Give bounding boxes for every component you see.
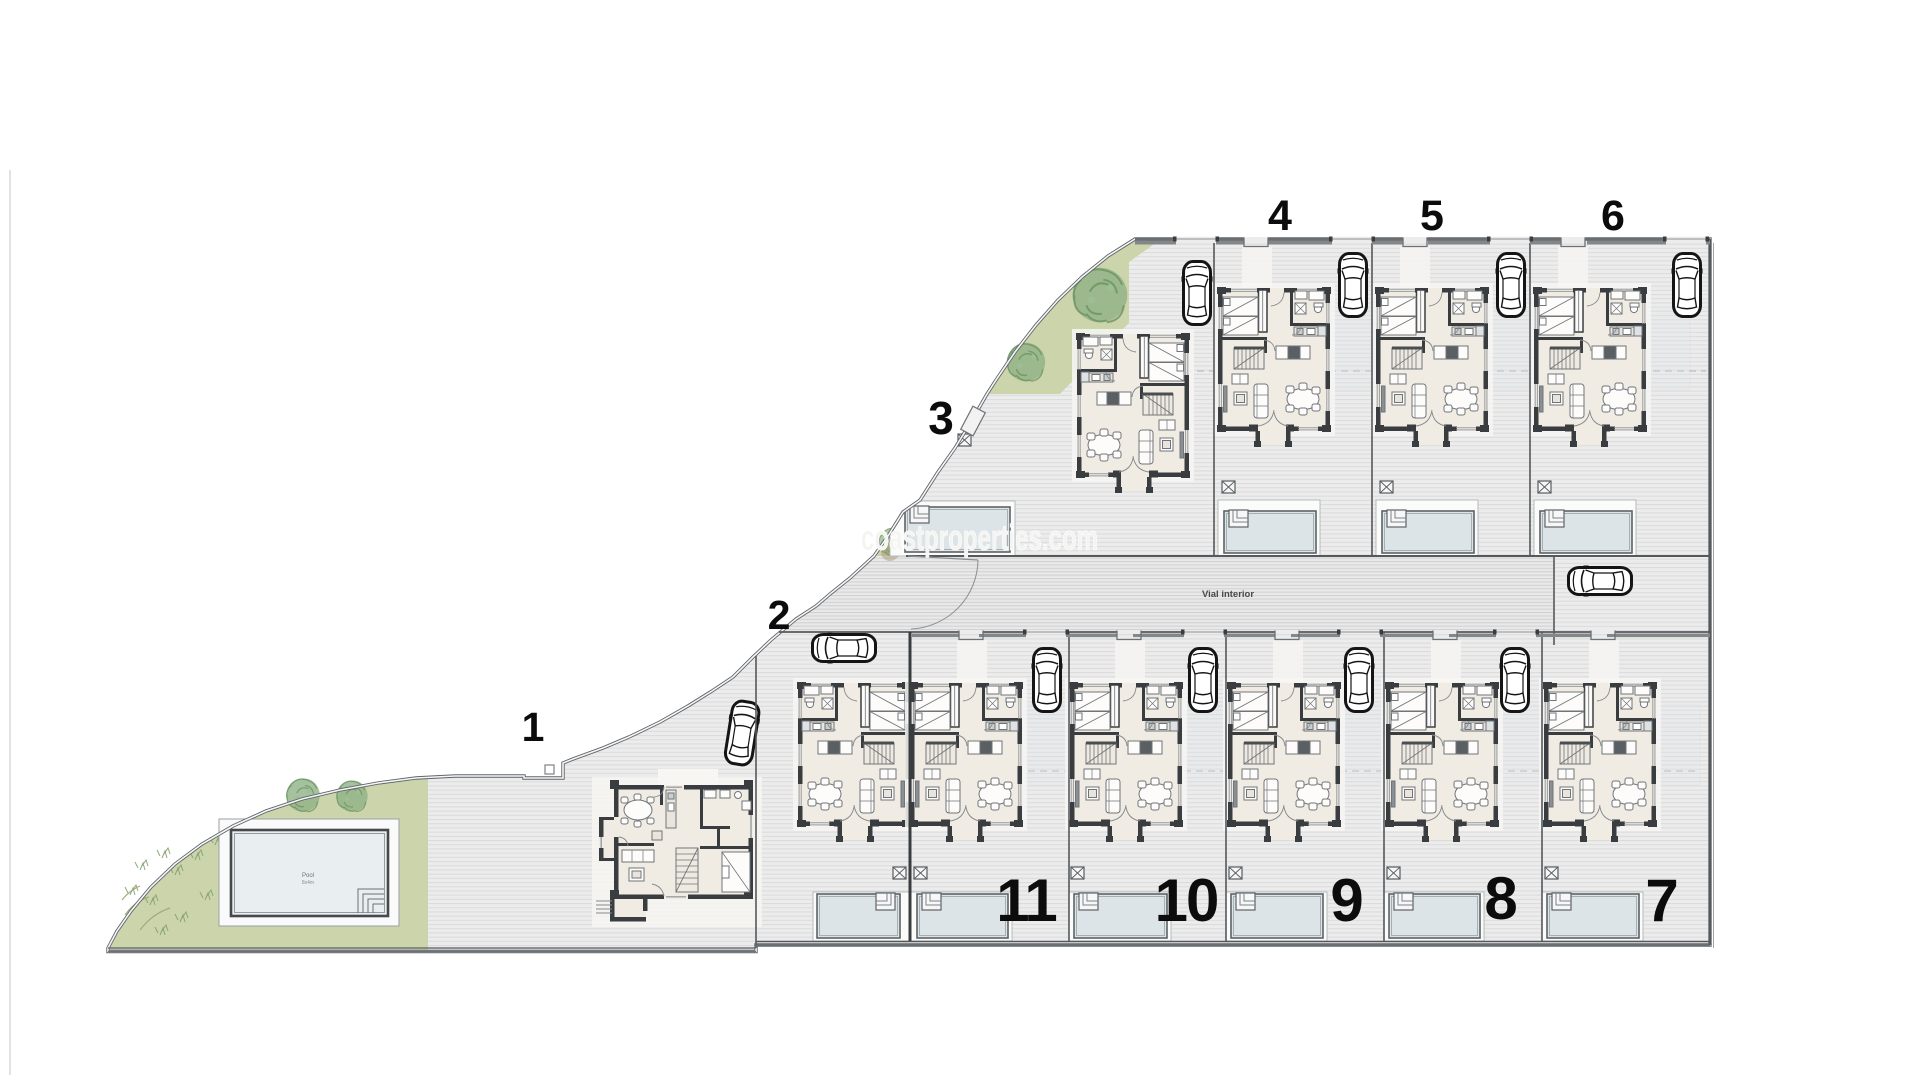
svg-text:Pool: Pool [302, 873, 314, 879]
svg-text:3: 3 [928, 392, 954, 444]
svg-text:2: 2 [768, 592, 791, 638]
svg-text:1: 1 [522, 704, 545, 750]
svg-text:9: 9 [1330, 867, 1363, 934]
svg-text:8: 8 [1484, 865, 1517, 932]
svg-text:10: 10 [1155, 867, 1218, 934]
svg-text:Vial interior: Vial interior [1202, 589, 1254, 600]
svg-text:6: 6 [1601, 192, 1625, 240]
svg-text:4: 4 [1268, 192, 1292, 240]
svg-text:11: 11 [996, 867, 1056, 934]
svg-text:7: 7 [1645, 867, 1678, 934]
svg-text:5: 5 [1420, 192, 1444, 240]
svg-text:coastproperties.com: coastproperties.com [861, 518, 1098, 558]
svg-text:8x4m: 8x4m [302, 880, 314, 886]
